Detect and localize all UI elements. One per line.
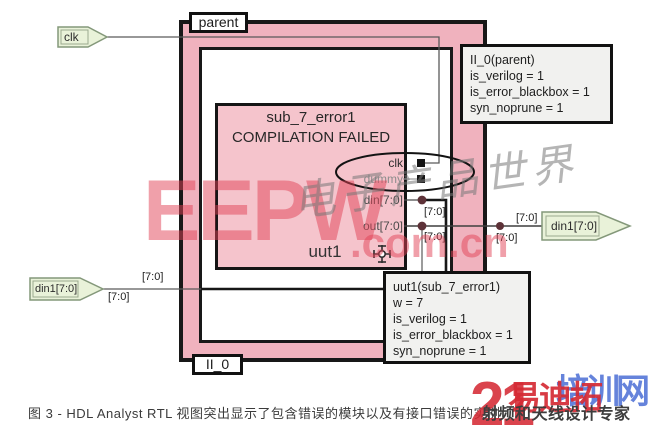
callout-line: syn_noprune = 1 xyxy=(393,343,521,359)
callout-line: is_verilog = 1 xyxy=(470,68,603,84)
parent-properties-callout: II_0(parent) is_verilog = 1 is_error_bla… xyxy=(460,44,613,124)
callout-line: uut1(sub_7_error1) xyxy=(393,279,521,295)
callout-line: w = 7 xyxy=(393,295,521,311)
din1-input-port-label: din1[7:0] xyxy=(35,283,77,295)
callout-line: is_verilog = 1 xyxy=(393,311,521,327)
din1-output-port-label: din1[7:0] xyxy=(551,219,597,233)
uut1-properties-callout: uut1(sub_7_error1) w = 7 is_verilog = 1 … xyxy=(383,271,531,364)
callout-line: syn_noprune = 1 xyxy=(470,100,603,116)
callout-line: is_error_blackbox = 1 xyxy=(393,327,521,343)
callout-line: is_error_blackbox = 1 xyxy=(470,84,603,100)
rtl-schematic-figure: sub_7_error1 COMPILATION FAILED clk dumm… xyxy=(0,0,650,433)
clk-port-label: clk xyxy=(64,30,79,44)
callout-line: II_0(parent) xyxy=(470,52,603,68)
